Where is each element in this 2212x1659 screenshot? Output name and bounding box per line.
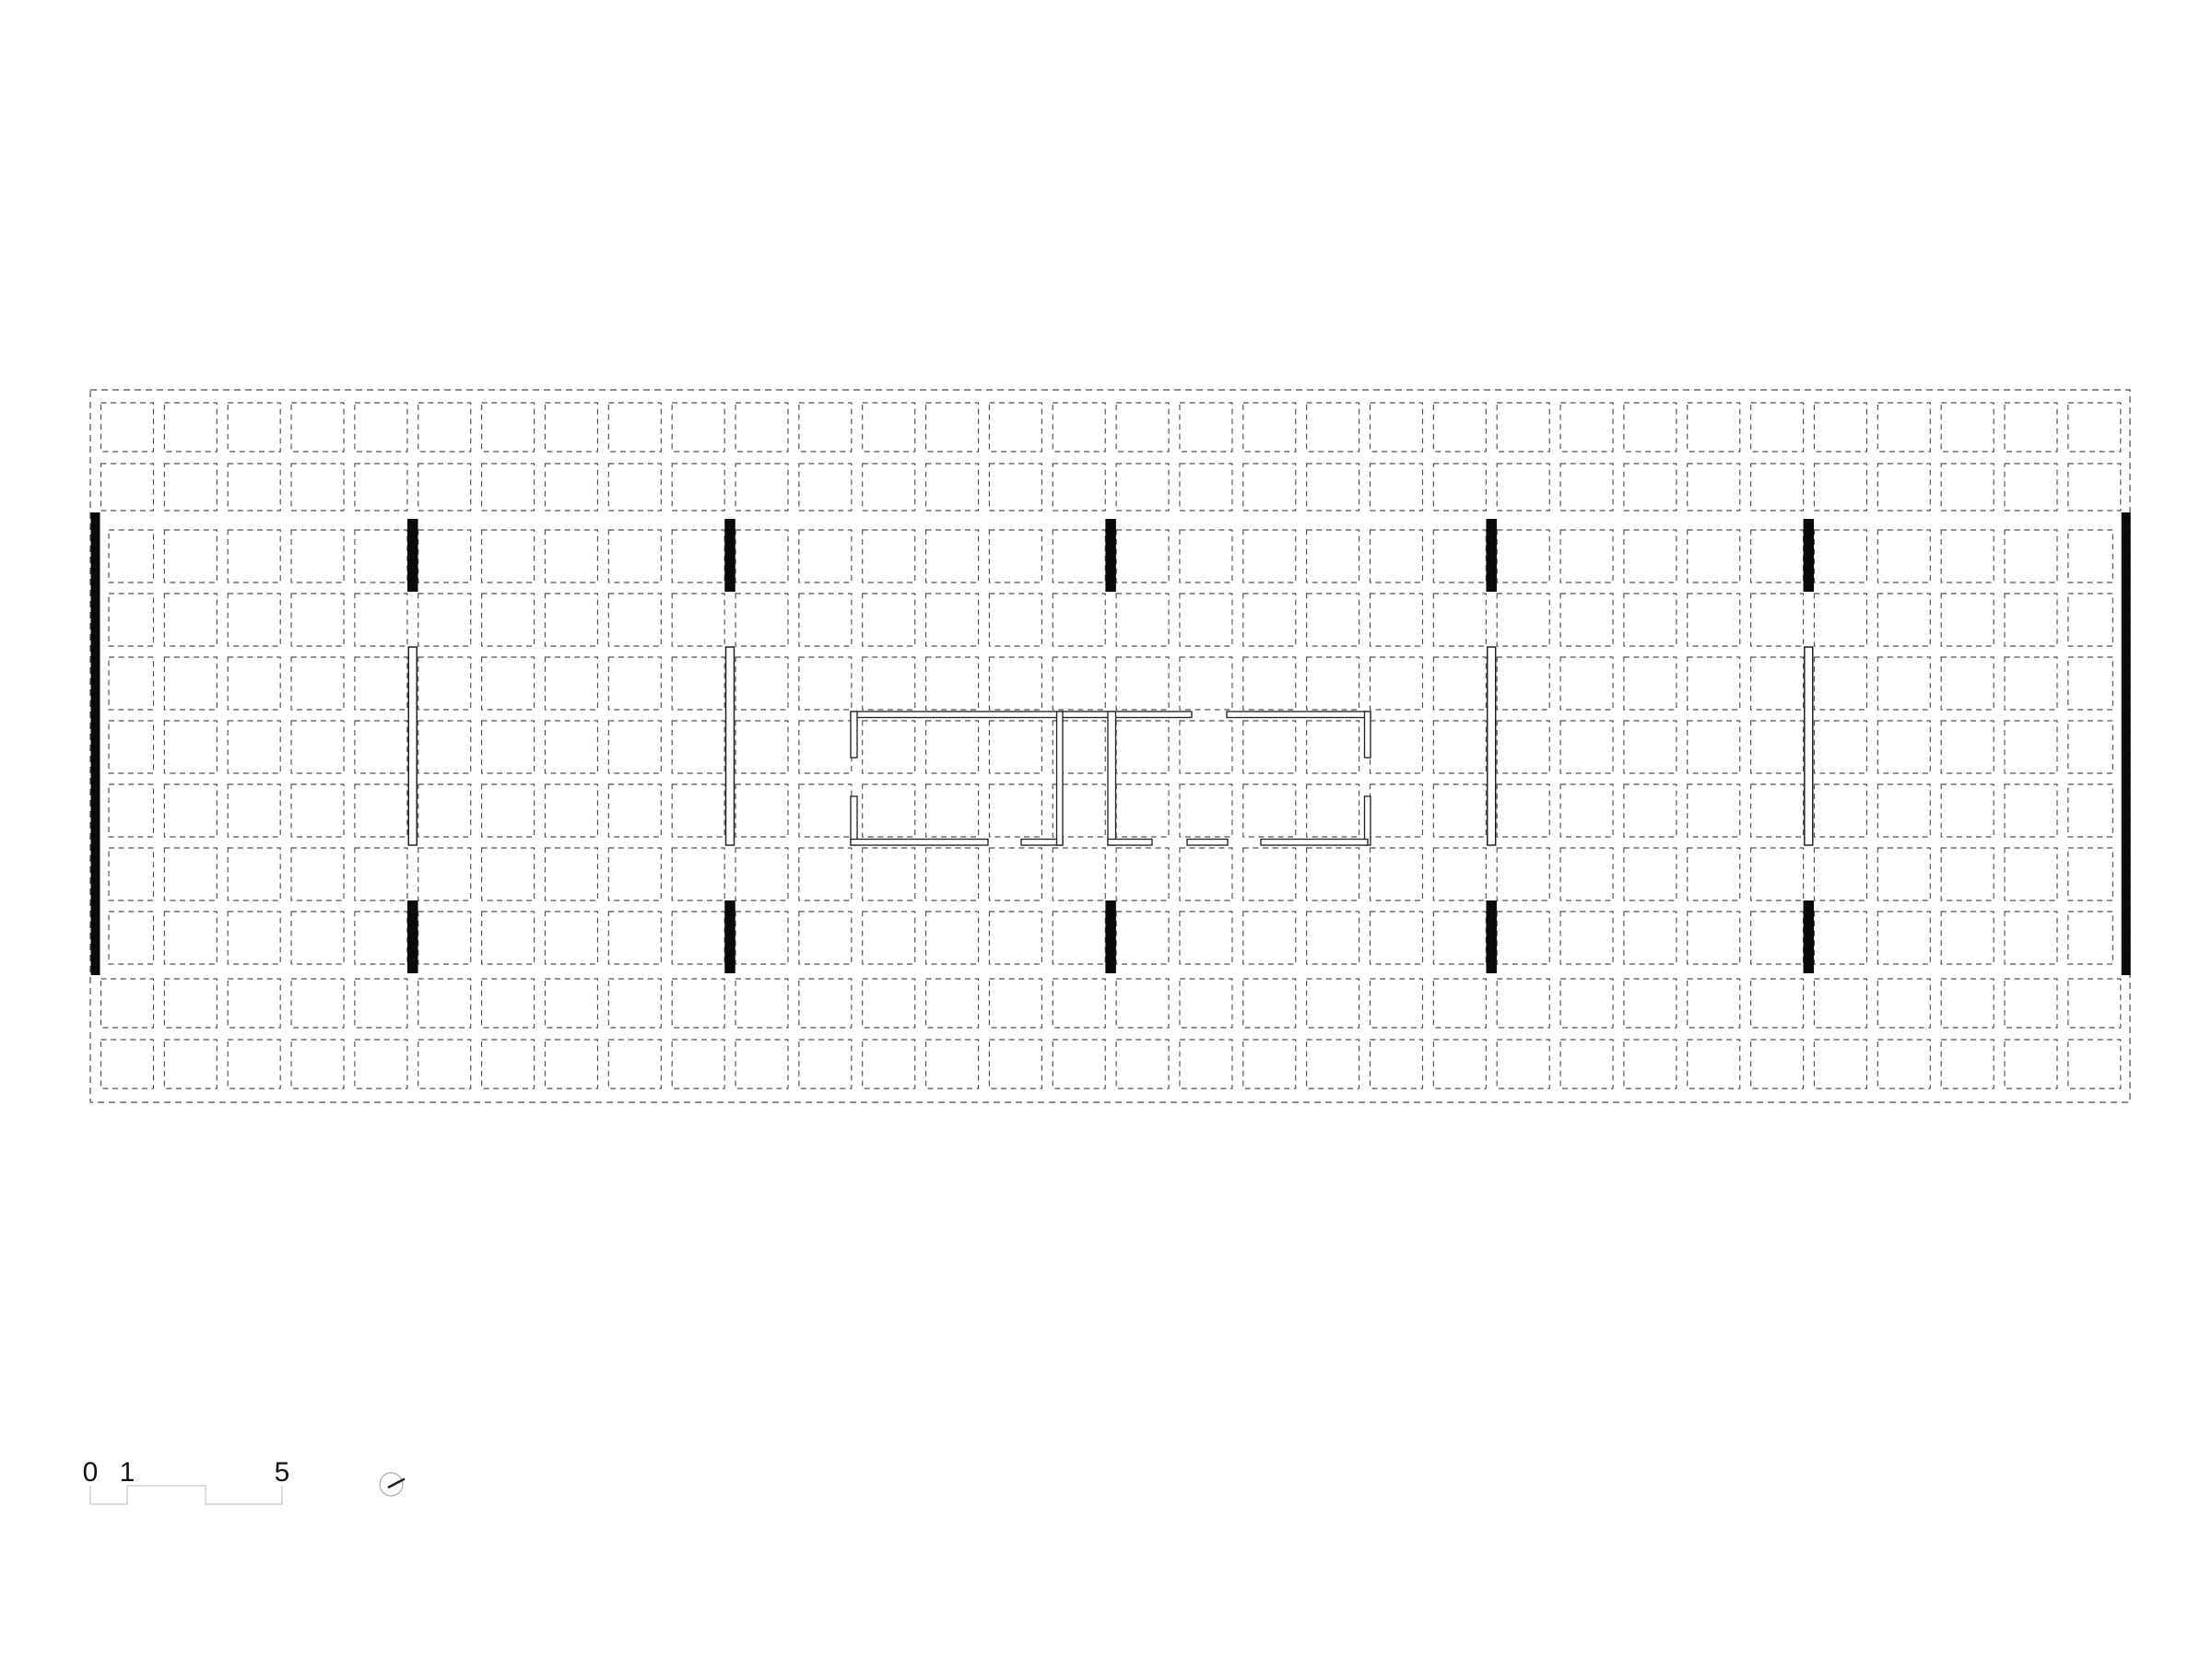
paver-tile	[291, 721, 344, 773]
paver-tile	[1624, 912, 1677, 964]
paver-tile	[109, 721, 154, 773]
paver-tile	[1941, 594, 1994, 646]
paver-tile	[109, 530, 154, 582]
paver-tile	[164, 979, 217, 1028]
paver-tile	[1560, 1040, 1613, 1088]
paver-tile	[1624, 979, 1677, 1028]
paver-tile	[735, 1040, 788, 1088]
paver-tile	[1180, 721, 1232, 773]
paver-tile	[164, 530, 217, 582]
paver-tile	[109, 912, 154, 964]
paver-tile	[1243, 784, 1296, 837]
paver-tile	[926, 594, 979, 646]
paver-tile	[109, 657, 154, 710]
paver-tile	[1180, 848, 1232, 900]
paver-tile	[164, 848, 217, 900]
paver-tile	[545, 979, 597, 1028]
core-wall	[1187, 840, 1228, 846]
paver-tile	[291, 1040, 344, 1088]
paver-tile	[2005, 1040, 2057, 1088]
paver-tile	[1751, 530, 1804, 582]
paver-tile	[2005, 721, 2057, 773]
paver-tile	[926, 912, 979, 964]
paver-tile	[926, 657, 979, 710]
paver-tile	[1497, 784, 1549, 837]
paver-tile	[1877, 464, 1930, 511]
paver-tile	[735, 979, 788, 1028]
mullion-line	[726, 647, 735, 845]
paver-tile	[1560, 784, 1613, 837]
paver-tile	[1307, 721, 1359, 773]
paver-tile	[1941, 1040, 1994, 1088]
paver-tile	[863, 721, 915, 773]
paver-tile	[1560, 912, 1613, 964]
paver-tile	[1371, 848, 1423, 900]
paver-tile	[2068, 912, 2113, 964]
paver-tile	[926, 1040, 979, 1088]
paver-tile	[355, 403, 407, 452]
paver-tile	[228, 1040, 280, 1088]
paver-tile	[2068, 979, 2121, 1028]
paver-tile	[735, 784, 788, 837]
paver-tile	[1053, 979, 1105, 1028]
mullion-line	[1805, 647, 1813, 845]
column	[724, 519, 735, 592]
paver-tile	[989, 979, 1041, 1028]
paver-tile	[355, 657, 407, 710]
paver-tile	[1243, 979, 1296, 1028]
paver-tile	[482, 979, 535, 1028]
paver-tile	[482, 848, 535, 900]
paver-tile	[545, 1040, 597, 1088]
core-wall	[1108, 840, 1152, 846]
paver-tile	[1624, 721, 1677, 773]
paver-tile	[1180, 594, 1232, 646]
paver-tile	[1371, 464, 1423, 511]
paver-tile	[291, 657, 344, 710]
paver-tile	[989, 530, 1041, 582]
paver-tile	[1053, 530, 1105, 582]
paver-tile	[1497, 594, 1549, 646]
core-wall	[1227, 712, 1371, 718]
paver-tile	[1371, 403, 1423, 452]
paver-tile	[1877, 848, 1930, 900]
paver-tile	[1243, 464, 1296, 511]
paver-tile	[1243, 530, 1296, 582]
paver-tile	[735, 464, 788, 511]
floor-plan-drawing: 0 1 5	[0, 0, 2212, 1659]
paver-tile	[482, 721, 535, 773]
paver-tile	[545, 912, 597, 964]
paver-tile	[1307, 530, 1359, 582]
paver-tile	[863, 403, 915, 452]
paver-tile	[2005, 403, 2057, 452]
paver-tile	[1180, 912, 1232, 964]
paver-tile	[1116, 403, 1169, 452]
paver-tile	[608, 721, 661, 773]
paver-tile	[1433, 848, 1486, 900]
paver-tile	[799, 464, 852, 511]
paver-tile	[1307, 912, 1359, 964]
paver-tile	[109, 848, 154, 900]
paver-tile	[863, 784, 915, 837]
paver-tile	[164, 594, 217, 646]
paver-tile	[926, 848, 979, 900]
paver-tile	[1814, 784, 1866, 837]
paver-tile	[545, 848, 597, 900]
paver-tile	[926, 721, 979, 773]
scale-bar-line	[90, 1486, 282, 1504]
paver-tile	[355, 594, 407, 646]
paver-tile	[1116, 594, 1169, 646]
paver-tile	[1307, 403, 1359, 452]
paver-tile	[545, 464, 597, 511]
paver-tile	[1624, 403, 1677, 452]
north-indicator	[380, 1473, 405, 1496]
paver-tile	[1497, 403, 1549, 452]
paver-tile	[989, 912, 1041, 964]
paver-tile	[1307, 657, 1359, 710]
paver-tile	[799, 403, 852, 452]
paver-tile	[989, 464, 1041, 511]
scale-label-1: 1	[120, 1457, 135, 1488]
core-wall	[851, 840, 988, 846]
paver-tile	[545, 403, 597, 452]
paver-tile	[1307, 979, 1359, 1028]
paver-tile	[1180, 530, 1232, 582]
paver-tile	[1941, 657, 1994, 710]
paver-tile	[672, 912, 724, 964]
paver-tile	[545, 657, 597, 710]
paver-tile	[418, 912, 471, 964]
paver-tile	[482, 1040, 535, 1088]
paver-tile	[1814, 979, 1866, 1028]
paver-tile	[545, 530, 597, 582]
paver-tile	[1433, 403, 1486, 452]
paver-tile	[1116, 979, 1169, 1028]
paver-tile	[1688, 784, 1740, 837]
paver-tile	[1371, 979, 1423, 1028]
paver-tile	[1941, 848, 1994, 900]
paver-tile	[926, 403, 979, 452]
paver-tile	[608, 912, 661, 964]
paver-tile	[355, 530, 407, 582]
paver-tile	[1371, 530, 1423, 582]
paver-tile	[2005, 530, 2057, 582]
paver-tile	[1180, 657, 1232, 710]
paver-tile	[863, 848, 915, 900]
paver-tile	[1751, 721, 1804, 773]
paver-tile	[1053, 912, 1105, 964]
paver-tile	[1688, 657, 1740, 710]
paver-tile	[1814, 594, 1866, 646]
paver-tile	[228, 784, 280, 837]
paver-tile	[1877, 912, 1930, 964]
column	[1486, 900, 1497, 973]
paver-tile	[164, 784, 217, 837]
paver-tile	[1307, 1040, 1359, 1088]
paver-tile	[2005, 594, 2057, 646]
paver-tile	[863, 464, 915, 511]
paver-tile	[1371, 784, 1423, 837]
paver-tile	[1116, 784, 1169, 837]
paver-tile	[1243, 594, 1296, 646]
paver-tile	[735, 721, 788, 773]
paver-tile	[1497, 979, 1549, 1028]
paver-tile	[1243, 721, 1296, 773]
paver-tile	[418, 594, 471, 646]
paver-tile	[2068, 1040, 2121, 1088]
paver-tile	[1751, 784, 1804, 837]
paver-tile	[1371, 657, 1423, 710]
paver-tile	[799, 784, 852, 837]
paver-tile	[672, 784, 724, 837]
paver-tile	[101, 979, 154, 1028]
core-wall	[851, 712, 857, 758]
paver-tile	[1688, 721, 1740, 773]
paver-tile	[418, 657, 471, 710]
paver-tile	[418, 403, 471, 452]
paver-tile	[1560, 657, 1613, 710]
column	[1804, 900, 1815, 973]
paver-tile	[291, 979, 344, 1028]
column	[407, 900, 418, 973]
paver-tile	[1688, 594, 1740, 646]
paver-tile	[989, 784, 1041, 837]
paver-tile	[418, 721, 471, 773]
paver-tile	[672, 721, 724, 773]
edge-plate-column	[91, 512, 100, 975]
paver-tile	[926, 464, 979, 511]
core-wall	[851, 796, 857, 845]
paver-tile	[1877, 530, 1930, 582]
paver-tile	[418, 1040, 471, 1088]
paver-tile	[545, 721, 597, 773]
paver-tile	[672, 1040, 724, 1088]
paver-tile	[545, 594, 597, 646]
paver-tile	[926, 530, 979, 582]
paver-tile	[1688, 979, 1740, 1028]
paver-tile	[482, 530, 535, 582]
paver-tile	[863, 594, 915, 646]
paver-tile	[1560, 721, 1613, 773]
paver-tile	[1688, 464, 1740, 511]
paver-tile	[672, 979, 724, 1028]
paver-tile	[1243, 912, 1296, 964]
paver-tile	[989, 1040, 1041, 1088]
paver-tile	[1814, 464, 1866, 511]
paver-tile	[1688, 848, 1740, 900]
paver-tile	[1243, 403, 1296, 452]
paver-tile	[1116, 912, 1169, 964]
paver-tile	[1433, 1040, 1486, 1088]
paver-tile	[989, 403, 1041, 452]
column	[1486, 519, 1497, 592]
paver-tile	[1116, 1040, 1169, 1088]
paver-tile	[1941, 403, 1994, 452]
paver-tile	[1433, 979, 1486, 1028]
scale-label-0: 0	[83, 1457, 99, 1488]
paver-tile	[291, 530, 344, 582]
paver-tile	[799, 1040, 852, 1088]
paver-tile	[1433, 721, 1486, 773]
paver-tile	[1243, 657, 1296, 710]
paver-tile	[799, 912, 852, 964]
paver-tile	[1751, 657, 1804, 710]
paver-tile	[1307, 848, 1359, 900]
paver-tile	[2005, 464, 2057, 511]
paver-tile	[2005, 657, 2057, 710]
paver-tile	[291, 912, 344, 964]
paver-tile	[2068, 464, 2121, 511]
paver-tile	[1307, 784, 1359, 837]
paver-tile	[608, 530, 661, 582]
paver-tile	[1688, 1040, 1740, 1088]
paver-tile	[1243, 1040, 1296, 1088]
paver-tile	[2068, 530, 2113, 582]
paver-tile	[989, 657, 1041, 710]
paver-tile	[1053, 657, 1105, 710]
paver-tile	[1751, 1040, 1804, 1088]
paver-tile	[1751, 979, 1804, 1028]
paver-tile	[1751, 464, 1804, 511]
paver-tile	[228, 912, 280, 964]
paver-tile	[799, 594, 852, 646]
paver-tile	[482, 464, 535, 511]
paver-tile	[608, 979, 661, 1028]
paver-tile	[2068, 848, 2113, 900]
paver-tile	[926, 979, 979, 1028]
paver-tile	[1053, 594, 1105, 646]
paver-tile	[1814, 912, 1866, 964]
paver-tile	[164, 912, 217, 964]
paver-tile	[1688, 530, 1740, 582]
paver-tile	[2005, 979, 2057, 1028]
paver-tile	[101, 464, 154, 511]
paver-tile	[1307, 594, 1359, 646]
north-circle	[380, 1473, 403, 1496]
paver-tile	[799, 530, 852, 582]
paver-tile	[863, 530, 915, 582]
paver-tile	[418, 979, 471, 1028]
paver-tile	[482, 784, 535, 837]
paver-tile	[355, 912, 407, 964]
paver-tile	[2005, 784, 2057, 837]
paver-tile	[482, 403, 535, 452]
paver-tile	[228, 979, 280, 1028]
paver-tile	[1941, 530, 1994, 582]
paver-tile	[1624, 848, 1677, 900]
paver-tile	[2068, 784, 2113, 837]
paver-tile	[608, 403, 661, 452]
paver-tile	[1497, 912, 1549, 964]
paver-tile	[1497, 1040, 1549, 1088]
column	[1804, 519, 1815, 592]
paver-tile	[1814, 657, 1866, 710]
paver-tile	[735, 530, 788, 582]
paver-tile	[1180, 1040, 1232, 1088]
paver-tile	[608, 464, 661, 511]
paver-tile	[1877, 594, 1930, 646]
paver-tile	[228, 594, 280, 646]
paver-tile	[291, 403, 344, 452]
paver-tile	[1433, 912, 1486, 964]
paver-tile	[2068, 594, 2113, 646]
paver-tile	[1877, 1040, 1930, 1088]
paver-tile	[2068, 721, 2113, 773]
paver-tile	[799, 979, 852, 1028]
paver-tile	[1751, 912, 1804, 964]
paver-tile	[1941, 464, 1994, 511]
paver-tile	[101, 403, 154, 452]
paver-tile	[1751, 594, 1804, 646]
paver-tile	[1751, 848, 1804, 900]
paver-tile	[1307, 464, 1359, 511]
paver-tile	[1116, 464, 1169, 511]
mullion-line	[408, 647, 417, 845]
paver-tile	[1877, 721, 1930, 773]
paver-tile	[1053, 464, 1105, 511]
paver-tile	[164, 403, 217, 452]
paver-tile	[735, 912, 788, 964]
core-wall	[1108, 712, 1116, 845]
scale-bar: 0 1 5	[83, 1457, 290, 1504]
edge-plate-column	[2122, 512, 2131, 975]
paver-tile	[291, 594, 344, 646]
paver-tile	[1877, 784, 1930, 837]
paver-tile	[672, 403, 724, 452]
paver-tile	[1433, 784, 1486, 837]
paver-tile	[608, 784, 661, 837]
mullion-line	[1488, 647, 1496, 845]
paver-tile	[1497, 530, 1549, 582]
paver-tile	[1497, 657, 1549, 710]
paver-tile	[672, 530, 724, 582]
paver-tile	[1497, 464, 1549, 511]
paver-tile	[989, 594, 1041, 646]
paver-tile	[2005, 848, 2057, 900]
paver-tile	[291, 464, 344, 511]
paver-tile	[672, 848, 724, 900]
paver-tile	[1624, 464, 1677, 511]
column	[1105, 519, 1116, 592]
paver-tile	[164, 657, 217, 710]
paver-tile	[863, 1040, 915, 1088]
paver-tile	[101, 1040, 154, 1088]
paver-tile	[1877, 657, 1930, 710]
paver-tile	[164, 464, 217, 511]
paver-tile	[1560, 594, 1613, 646]
paver-tile	[228, 721, 280, 773]
paver-tile	[1814, 403, 1866, 452]
paver-tile	[109, 784, 154, 837]
paver-tile	[1497, 848, 1549, 900]
paver-tile	[164, 1040, 217, 1088]
scale-label-5: 5	[275, 1457, 290, 1488]
paver-tile	[291, 784, 344, 837]
paver-tile	[735, 657, 788, 710]
paver-tile	[1180, 979, 1232, 1028]
paver-tile	[1116, 657, 1169, 710]
core-wall	[1365, 796, 1371, 845]
paver-tile	[799, 657, 852, 710]
paver-tile	[863, 657, 915, 710]
paver-tile	[799, 848, 852, 900]
column	[1105, 900, 1116, 973]
paver-tile	[228, 657, 280, 710]
paver-tile	[735, 594, 788, 646]
paver-tile	[418, 784, 471, 837]
